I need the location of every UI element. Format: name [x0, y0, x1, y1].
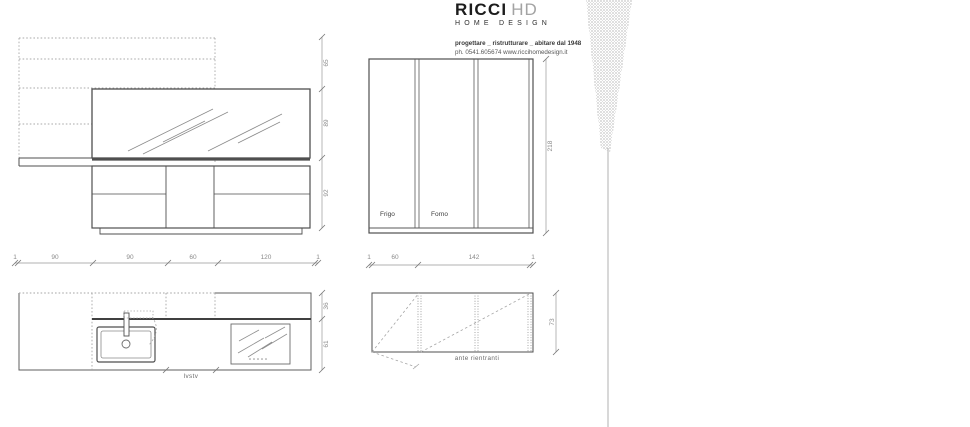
countertop-band	[19, 158, 310, 166]
brand-title: RICCI HD	[455, 1, 630, 18]
dim-label: 1	[367, 254, 371, 261]
tall-units-horizontal-dims: 1 60 142 1	[366, 254, 536, 268]
tall-units-vertical-dim: 218	[543, 56, 554, 236]
plan-view-drawing: lvstv 36 61	[19, 290, 330, 380]
oven-label: Forno	[431, 211, 448, 218]
brand-tagline: progettare _ ristrutturare _ abitare dal…	[455, 41, 630, 47]
elevation-main-drawing: 65 89 92 1 90 90 60 120 1	[12, 34, 330, 266]
base-cabinet	[92, 166, 310, 234]
retracting-doors-caption: ante rientranti	[455, 355, 500, 362]
plan-depth-dims: 36 61	[319, 290, 330, 373]
dim-label: 1	[13, 254, 17, 261]
dim-label: 65	[323, 59, 330, 67]
dim-label: 90	[51, 254, 59, 261]
dim-label: 89	[323, 119, 330, 127]
dim-label: 36	[323, 302, 330, 310]
dim-label: 142	[469, 254, 480, 261]
fridge-label: Frigo	[380, 211, 395, 218]
design-sheet: 65 89 92 1 90 90 60 120 1 Fri	[0, 0, 970, 427]
dim-label: 218	[547, 140, 554, 151]
elevation-main-horizontal-dims: 1 90 90 60 120 1	[12, 254, 321, 266]
brand-subtitle: HOME DESIGN	[455, 20, 630, 27]
brand-contact: ph. 0541.605674 www.riccihomedesign.it	[455, 50, 630, 56]
dim-label: 61	[323, 340, 330, 348]
dim-label: 1	[316, 254, 320, 261]
glass-panel	[231, 324, 290, 364]
dim-label: 60	[391, 254, 399, 261]
dim-label: 73	[549, 318, 556, 326]
dishwasher-label: lvstv	[184, 373, 199, 380]
plinth	[100, 228, 302, 234]
wall-units-body	[372, 293, 533, 352]
drawing-canvas: 65 89 92 1 90 90 60 120 1 Fri	[0, 0, 970, 427]
elevation-main-vertical-dims: 65 89 92	[319, 34, 330, 231]
dim-label: 92	[323, 189, 330, 197]
dim-label: 1	[531, 254, 535, 261]
tall-units-body	[369, 59, 533, 233]
tall-units-drawing: Frigo Forno 218 1 60 142 1	[366, 56, 554, 268]
wall-units-drawing: ante rientranti 73	[372, 290, 559, 369]
brand-name-secondary: HD	[511, 1, 538, 18]
dim-label: 90	[126, 254, 134, 261]
brand-block: RICCI HD HOME DESIGN progettare _ ristru…	[455, 1, 630, 56]
wall-units-vertical-dim: 73	[549, 290, 559, 355]
brand-name-primary: RICCI	[455, 1, 507, 18]
sink-drain	[122, 340, 130, 348]
dim-label: 60	[189, 254, 197, 261]
dim-label: 120	[261, 254, 272, 261]
